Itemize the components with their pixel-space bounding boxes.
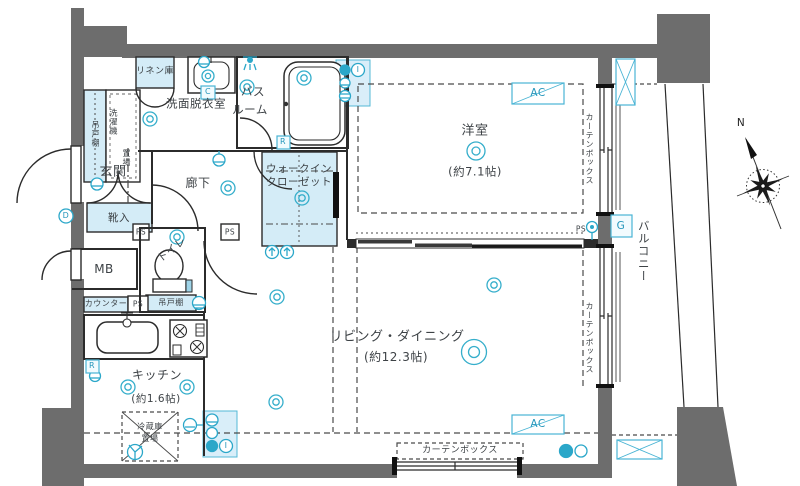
label-meter-box: MB bbox=[94, 263, 114, 275]
bath-door-icon bbox=[240, 118, 272, 150]
label-wic-1: ウォークイン bbox=[266, 164, 332, 175]
bathtub-icon bbox=[284, 62, 345, 145]
ps-vent-icon bbox=[587, 222, 598, 241]
label-i-kitchen: I bbox=[225, 442, 228, 450]
fridge-fan-icon bbox=[128, 445, 143, 461]
outlet-basin-icon bbox=[199, 57, 210, 68]
label-curtain-box-2: カーテンボックス bbox=[585, 302, 593, 374]
label-counter: カウンター bbox=[85, 300, 128, 308]
label-ps-4: PS bbox=[576, 225, 586, 233]
label-living-size: (約12.3帖) bbox=[364, 351, 428, 363]
label-ps-1: PS bbox=[136, 228, 146, 236]
label-wic-2: クローゼット bbox=[266, 177, 332, 188]
label-ac-living: AC bbox=[530, 419, 545, 430]
living-outlet-pair-icon bbox=[560, 445, 588, 458]
room-label-genkan: 玄関 bbox=[99, 166, 126, 179]
toilet-door-icon bbox=[152, 185, 198, 231]
living-door-icon bbox=[204, 241, 257, 294]
label-fridge-1: 冷蔵庫 bbox=[137, 423, 163, 431]
room-label-bath-2: ルーム bbox=[232, 104, 268, 116]
label-r-bath: R bbox=[280, 138, 286, 146]
label-fridge-2: 置場 bbox=[142, 435, 159, 443]
kitchen-sink-icon bbox=[97, 313, 158, 353]
label-curtain-box-1: カーテンボックス bbox=[585, 113, 593, 185]
label-c: C bbox=[205, 88, 211, 96]
floor-plan-drawing bbox=[0, 0, 800, 486]
label-washer-2: 置場 bbox=[122, 149, 130, 167]
label-kitchen-size: (約1.6帖) bbox=[131, 394, 180, 405]
label-i-bedroom: I bbox=[357, 66, 360, 74]
room-label-linen: リネン庫 bbox=[136, 68, 174, 77]
mb-door-icon bbox=[71, 249, 81, 280]
room-label-kitchen: キッチン bbox=[132, 369, 182, 381]
stove-icon bbox=[170, 320, 207, 357]
sliding-partition bbox=[347, 239, 598, 248]
room-label-washroom: 洗面脱衣室 bbox=[166, 98, 226, 110]
label-d: D bbox=[63, 212, 70, 220]
label-curtain-box-3: カーテンボックス bbox=[422, 447, 498, 456]
label-r-kitchen: R bbox=[89, 362, 95, 370]
hatch-box-top-icon bbox=[616, 59, 635, 105]
outlet-toilet-icon bbox=[193, 297, 206, 310]
room-label-living: リビング・ダイニング bbox=[329, 331, 464, 344]
label-shoe-cabinet: 靴入 bbox=[108, 213, 130, 224]
label-ps-2: PS bbox=[133, 300, 143, 308]
label-hanging-cupboard-left: 吊戸棚 bbox=[91, 121, 99, 148]
entrance-door-icon bbox=[71, 146, 81, 203]
room-label-hall: 廊下 bbox=[185, 177, 210, 189]
closet-slider-icon bbox=[333, 172, 339, 218]
shower-icon bbox=[243, 57, 257, 70]
compass-icon bbox=[736, 137, 790, 229]
balcony-lines bbox=[665, 84, 718, 407]
floor-plan: 玄関 廊下 洗面脱衣室 バス ルーム リネン庫 吊戸棚 洗濯機 置場 靴入 トイ… bbox=[0, 0, 800, 486]
label-western-size: (約7.1帖) bbox=[448, 166, 502, 178]
label-g: G bbox=[617, 221, 626, 232]
label-ps-3: PS bbox=[225, 228, 235, 236]
label-north: N bbox=[737, 118, 745, 129]
room-label-bath-1: バス bbox=[241, 86, 265, 98]
hatch-box-bottom-icon bbox=[617, 440, 662, 459]
outlet-cupboard-icon bbox=[91, 178, 103, 190]
room-label-balcony: バルコニー bbox=[637, 220, 649, 283]
label-washer-1: 洗濯機 bbox=[109, 109, 117, 136]
label-ac-bedroom: AC bbox=[530, 88, 545, 99]
closet-arrow-icons bbox=[266, 246, 294, 259]
label-hanging-cupboard-toilet: 吊戸棚 bbox=[158, 299, 184, 307]
room-label-western: 洋室 bbox=[461, 125, 488, 138]
outlet-hall-icon bbox=[213, 151, 225, 166]
